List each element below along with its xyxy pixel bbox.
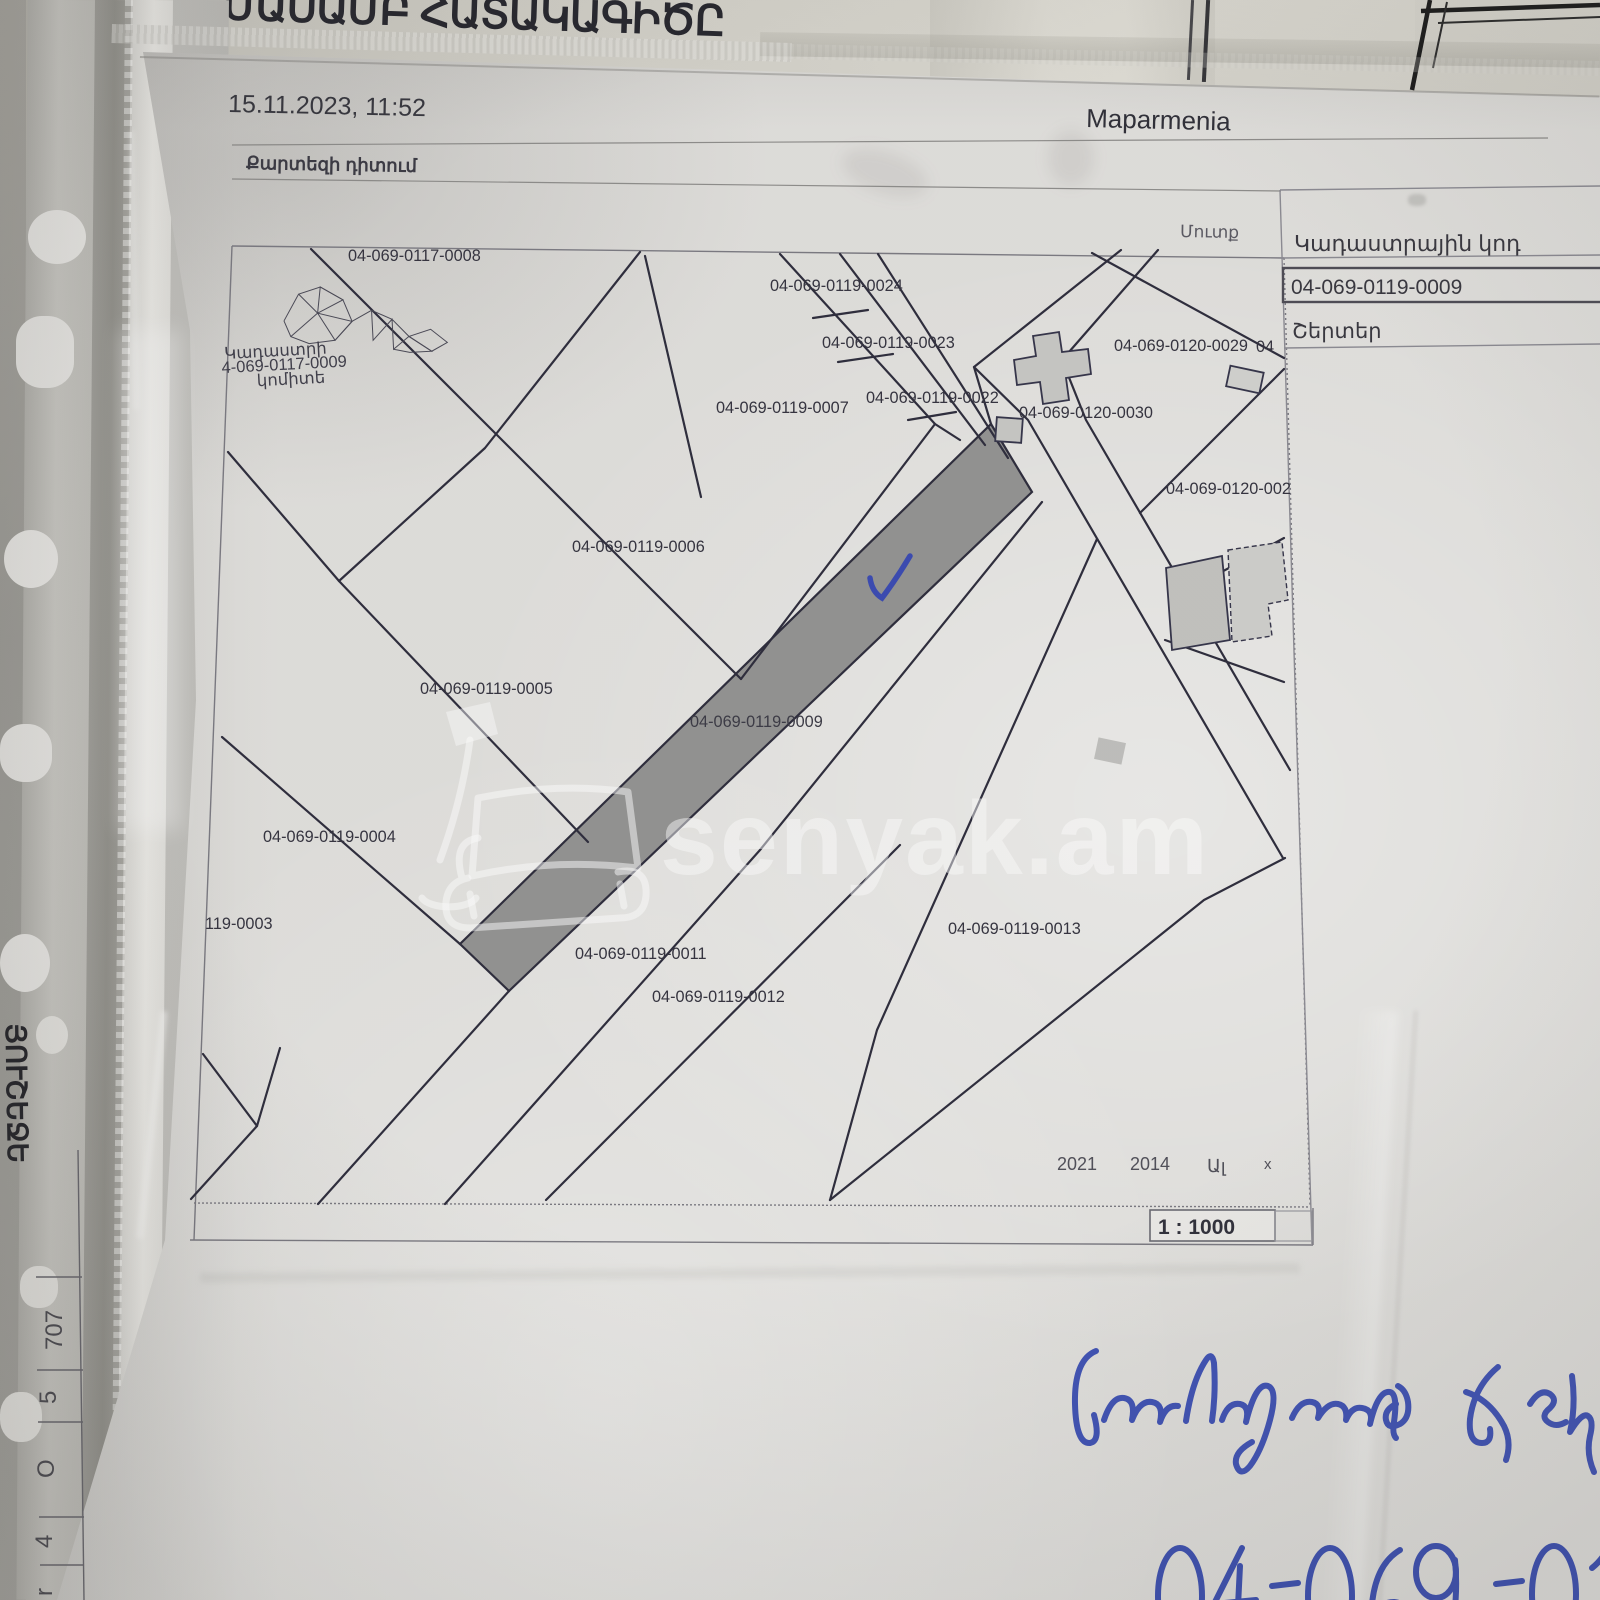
svg-text:Մուտք: Մուտք [1180,222,1239,242]
svg-text:04-069-0117-0008: 04-069-0117-0008 [348,247,481,265]
svg-text:707: 707 [41,1310,68,1350]
svg-text:Քարտեզի դիտում: Քարտեզի դիտում [246,153,418,177]
svg-text:04-069-0119-0022: 04-069-0119-0022 [866,389,999,407]
svg-text:կոմիտե: կոմիտե [256,369,325,391]
svg-text:04-069-0119-0011: 04-069-0119-0011 [575,945,707,963]
svg-text:ՅՈՒՇԵՋԵ: ՅՈՒՇԵՋԵ [0,1023,32,1163]
svg-text:04-069-0119-0009: 04-069-0119-0009 [690,713,823,731]
svg-text:2014: 2014 [1130,1154,1170,1174]
svg-text:04-069-0119-0004: 04-069-0119-0004 [263,828,396,846]
svg-text:04-069-0120-002: 04-069-0120-002 [1166,480,1291,498]
svg-text:O: O [33,1459,60,1478]
svg-text:04-069-0120-0030: 04-069-0120-0030 [1019,404,1153,422]
svg-text:04-069-0119-0013: 04-069-0119-0013 [948,920,1081,938]
svg-text:04-069-0119-0005: 04-069-0119-0005 [420,680,553,698]
svg-text:04-069-0119-0009: 04-069-0119-0009 [1291,276,1462,299]
svg-text:15.11.2023, 11:52: 15.11.2023, 11:52 [228,90,426,122]
svg-text:5: 5 [35,1391,62,1404]
svg-text:Կադաստրային կոդ: Կադաստրային կոդ [1294,231,1521,256]
svg-text:04-069-0119-0012: 04-069-0119-0012 [652,988,785,1006]
svg-text:Շերտեր: Շերտեր [1292,320,1382,343]
svg-text:Ալ: Ալ [1207,1156,1227,1176]
svg-text:04-069-0119-0024: 04-069-0119-0024 [770,277,903,295]
svg-text:04: 04 [1256,338,1274,356]
svg-text:r: r [31,1588,58,1596]
svg-text:04-069-0119-0007: 04-069-0119-0007 [716,399,849,417]
svg-text:Maparmenia: Maparmenia [1086,103,1232,137]
svg-text:04-069-0119-0006: 04-069-0119-0006 [572,538,705,556]
svg-text:x: x [1264,1156,1272,1173]
svg-text:4: 4 [31,1535,58,1548]
svg-text:2021: 2021 [1057,1154,1097,1174]
svg-text:1 : 1000: 1 : 1000 [1158,1216,1235,1239]
svg-text:119-0003: 119-0003 [205,915,273,933]
svg-text:senyak.am: senyak.am [660,781,1210,897]
svg-text:04-069-0120-0029: 04-069-0120-0029 [1114,337,1248,355]
svg-text:04-069-0119-0023: 04-069-0119-0023 [822,334,955,352]
